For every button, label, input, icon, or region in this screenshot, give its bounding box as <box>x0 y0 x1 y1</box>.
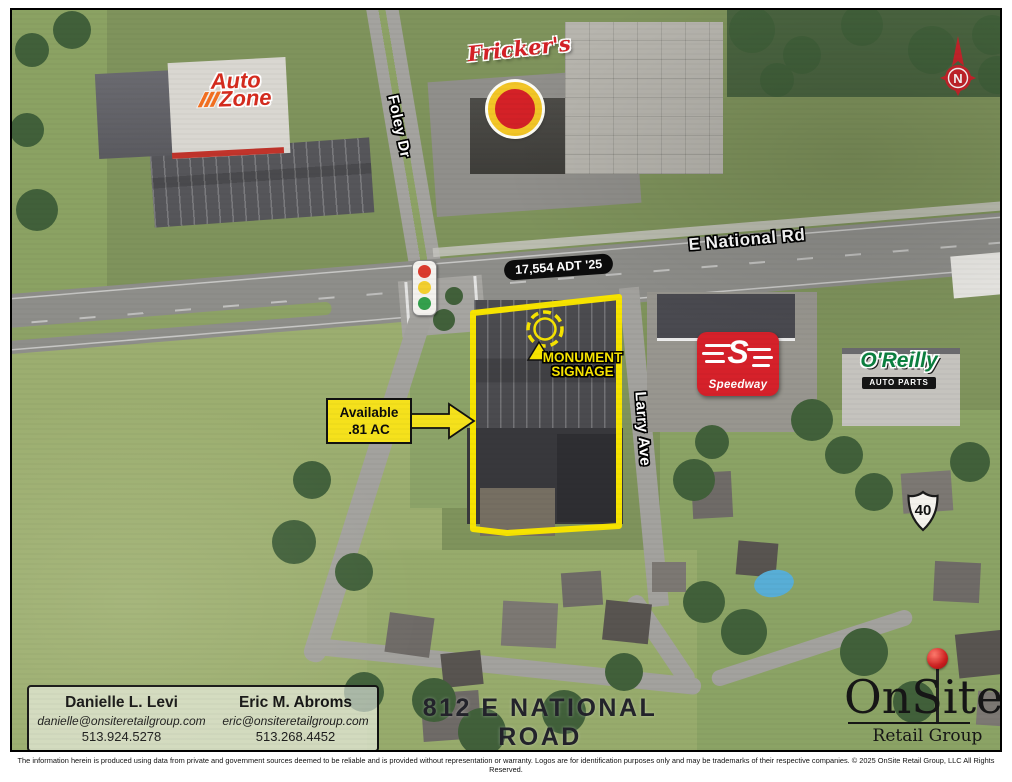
oreilly-logo: O'Reilly AUTO PARTS <box>840 350 958 390</box>
compass-north-letter: N <box>953 71 962 86</box>
route-40-shield-icon: 40 <box>909 492 938 530</box>
contact-name: Eric M. Abroms <box>222 694 368 712</box>
traffic-light-icon <box>412 260 437 316</box>
oreilly-wordmark: O'Reilly <box>840 350 958 372</box>
traffic-light-yellow <box>418 281 431 294</box>
traffic-light-green <box>418 297 431 310</box>
onsite-logo: OnSite Retail Group <box>840 634 1002 752</box>
onsite-subtitle: Retail Group <box>840 726 1002 746</box>
monument-circle-icon <box>528 312 562 346</box>
contact-phone: 513.924.5278 <box>37 729 205 744</box>
frickers-badge-icon <box>488 82 542 136</box>
traffic-light-red <box>418 265 431 278</box>
monument-signage-label: MONUMENT SIGNAGE <box>525 351 640 379</box>
flyer-page: 40 N Foley Dr E National Rd Larry Ave 17… <box>0 0 1012 782</box>
route-40-number: 40 <box>915 502 932 519</box>
monument-circle-inner <box>535 319 556 340</box>
property-outline <box>473 297 619 533</box>
north-compass-icon: N <box>940 36 976 96</box>
aerial-map: 40 N Foley Dr E National Rd Larry Ave 17… <box>10 8 1002 752</box>
property-address: 812 E NATIONAL ROAD Vandalia, OH 45377 <box>384 694 696 752</box>
speedway-s-icon: S <box>697 334 779 370</box>
onsite-wordmark: OnSite <box>844 674 1002 720</box>
monument-line2: SIGNAGE <box>525 365 640 379</box>
speedway-logo: S Speedway <box>697 332 779 396</box>
contact-email: danielle@onsiteretailgroup.com <box>37 714 205 728</box>
autozone-logo: Auto Zone <box>177 68 294 113</box>
oreilly-auto-parts: AUTO PARTS <box>862 377 935 389</box>
contact-phone: 513.268.4452 <box>222 729 368 744</box>
disclaimer: The information herein is produced using… <box>0 756 1012 774</box>
autozone-word-zone: Zone <box>219 85 272 112</box>
speedway-wordmark: Speedway <box>697 379 779 391</box>
contact-email: eric@onsiteretailgroup.com <box>222 714 368 728</box>
available-arrow-icon <box>410 404 474 438</box>
contact-card: Danielle L. Levi danielle@onsiteretailgr… <box>27 685 379 752</box>
contact-name: Danielle L. Levi <box>37 694 205 712</box>
contact-block: Eric M. Abroms eric@onsiteretailgroup.co… <box>222 694 368 744</box>
available-line2: .81 AC <box>328 421 410 438</box>
address-line1: 812 E NATIONAL ROAD <box>384 694 696 752</box>
available-callout: Available .81 AC <box>326 398 412 444</box>
map-pin-icon <box>927 648 948 669</box>
monument-line1: MONUMENT <box>525 351 640 365</box>
contact-block: Danielle L. Levi danielle@onsiteretailgr… <box>37 694 205 744</box>
onsite-rule <box>848 722 970 724</box>
available-line1: Available <box>328 404 410 421</box>
